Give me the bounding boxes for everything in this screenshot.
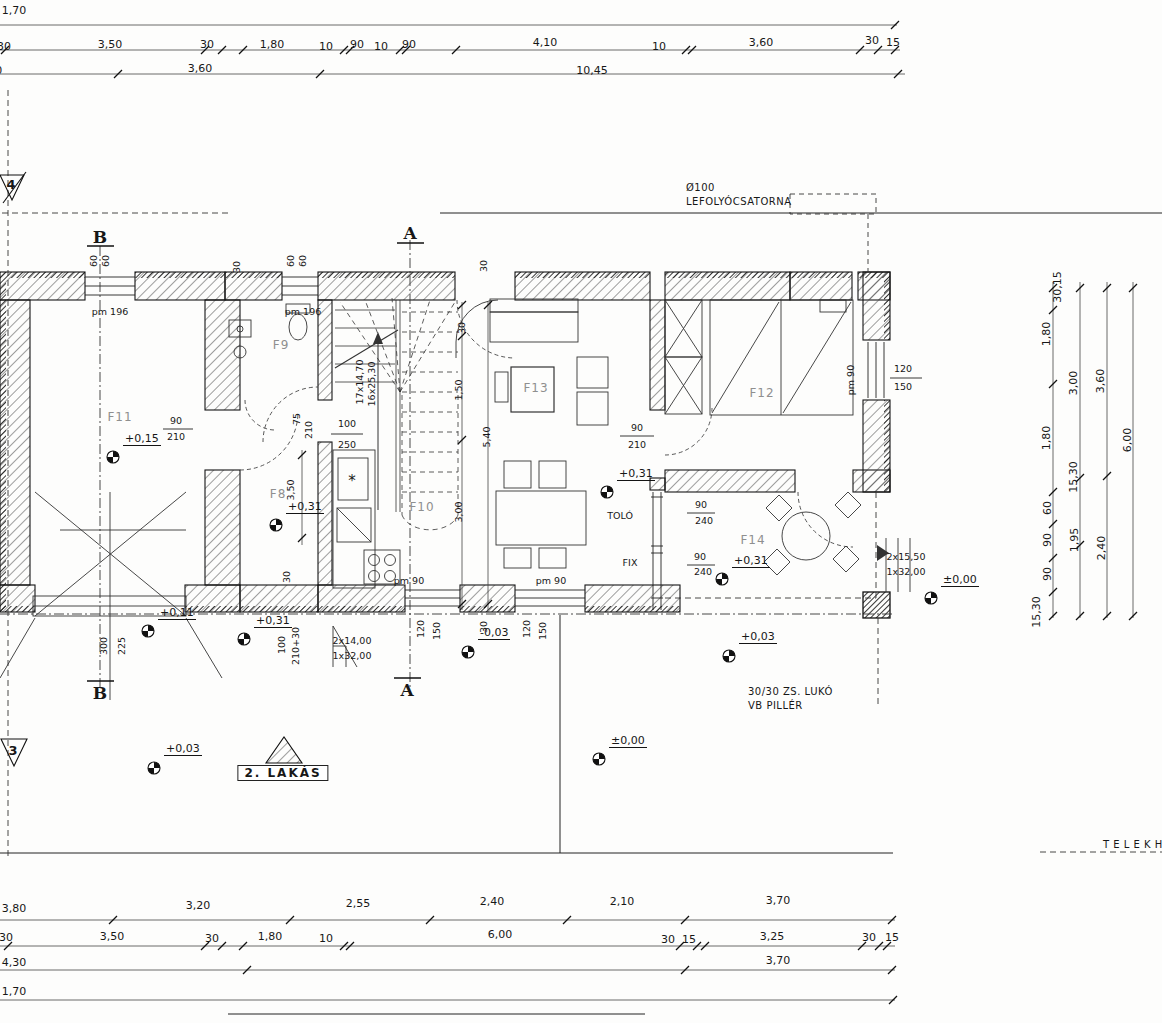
living-furniture (456, 299, 608, 568)
kitchen-fixtures (333, 450, 400, 588)
section-mark-bars (87, 243, 424, 681)
staircase (335, 298, 458, 530)
dimension-lines (0, 21, 1137, 1004)
floorplan-canvas: 1,70303,50301,80109010904,10103,6030153,… (0, 0, 1162, 1023)
unit-triangle (266, 737, 302, 763)
site-lines (0, 90, 1162, 1014)
fraction-bars (163, 378, 922, 565)
drain-channel (790, 194, 876, 272)
dimension-ticks (1, 21, 1137, 1004)
wc-fixtures (229, 304, 310, 358)
plan-linework (0, 0, 1162, 1023)
walls (0, 272, 890, 612)
terrace-furniture (764, 492, 861, 575)
bedroom-furniture (665, 300, 853, 415)
wall-outer-insulation (0, 272, 890, 612)
